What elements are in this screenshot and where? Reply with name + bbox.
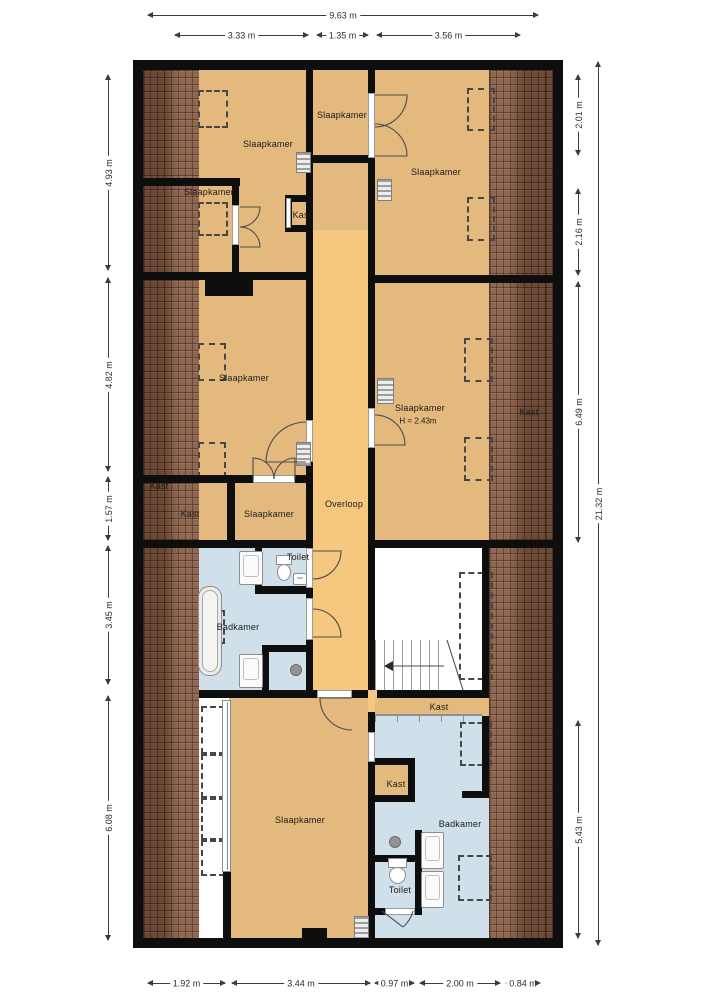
- dimension-label: 0.84 m: [506, 979, 540, 989]
- dimension-label: 4.82 m: [104, 358, 114, 392]
- dimension-label: 1.57 m: [104, 492, 114, 526]
- room-label-kast: Kast: [520, 407, 539, 417]
- room-label-kast: Kast: [430, 702, 449, 712]
- room-label-toilet: Toilet: [287, 552, 309, 562]
- dimension-label: 9.63 m: [326, 11, 360, 21]
- dimension-label: 2.00 m: [443, 979, 477, 989]
- dimension-bottom-4: 2.00 m: [420, 983, 500, 984]
- floorplan-page: Slaapkamer Slaapkamer Slaapkamer Kast Sl…: [0, 0, 707, 1000]
- dimension-top-3: 3.56 m: [377, 35, 520, 36]
- room-label-kast: Kast: [387, 779, 406, 789]
- room-label-kast: Kast: [181, 509, 200, 519]
- room-label-slaapkamer: Slaapkamer: [244, 509, 294, 519]
- dimension-bottom-5: 0.84 m: [506, 983, 540, 984]
- room-label-slaapkamer: Slaapkamer: [411, 167, 461, 177]
- dimension-bottom-1: 1.92 m: [148, 983, 225, 984]
- dimension-label: 6.49 m: [574, 395, 584, 429]
- dimension-right-4: 5.43 m: [578, 721, 579, 938]
- dimension-label: 3.44 m: [284, 979, 318, 989]
- room-label-slaapkamer: Slaapkamer: [219, 373, 269, 383]
- room-label-toilet: Toilet: [389, 885, 411, 895]
- room-label-slaapkamer: Slaapkamer: [395, 403, 445, 413]
- dimension-label: 1.35 m: [326, 31, 360, 41]
- room-label-badkamer: Badkamer: [439, 819, 482, 829]
- dimension-label: 5.43 m: [574, 813, 584, 847]
- dimension-left-4: 3.45 m: [108, 546, 109, 684]
- dimension-right-1: 2.01 m: [578, 75, 579, 155]
- dimension-label: 2.16 m: [574, 215, 584, 249]
- dimension-label: 0.97 m: [378, 979, 412, 989]
- dimension-right-2: 2.16 m: [578, 189, 579, 275]
- dimension-right-3: 6.49 m: [578, 282, 579, 542]
- dimension-bottom-3: 0.97 m: [375, 983, 414, 984]
- room-label-slaapkamer: Slaapkamer: [275, 815, 325, 825]
- dimension-label: 3.33 m: [225, 31, 259, 41]
- room-label-kast: Kast: [150, 481, 169, 491]
- dimension-label: 3.56 m: [432, 31, 466, 41]
- room-label-slaapkamer: Slaapkamer: [317, 110, 367, 120]
- dimension-label: 3.45 m: [104, 598, 114, 632]
- room-height-note: H = 2.43m: [399, 417, 436, 426]
- dimension-left-2: 4.82 m: [108, 278, 109, 471]
- dimension-top-1: 3.33 m: [175, 35, 308, 36]
- dimension-label: 2.01 m: [574, 98, 584, 132]
- dimension-left-3: 1.57 m: [108, 477, 109, 540]
- dimension-top-total: 9.63 m: [148, 15, 538, 16]
- dimension-label: 6.08 m: [104, 801, 114, 835]
- dimension-right-total: 21.32 m: [598, 62, 599, 945]
- dimension-left-1: 4.93 m: [108, 75, 109, 270]
- room-label-slaapkamer: Slaapkamer: [184, 187, 234, 197]
- dimension-label: 1.92 m: [170, 979, 204, 989]
- room-label-badkamer: Badkamer: [217, 622, 260, 632]
- room-label-overloop: Overloop: [325, 499, 363, 509]
- dimension-label: 4.93 m: [104, 156, 114, 190]
- dimension-top-2: 1.35 m: [317, 35, 368, 36]
- room-label-kast: Kast: [293, 210, 312, 220]
- dimension-bottom-2: 3.44 m: [232, 983, 370, 984]
- dimension-left-5: 6.08 m: [108, 696, 109, 940]
- dimension-label: 21.32 m: [594, 484, 604, 523]
- room-label-slaapkamer: Slaapkamer: [243, 139, 293, 149]
